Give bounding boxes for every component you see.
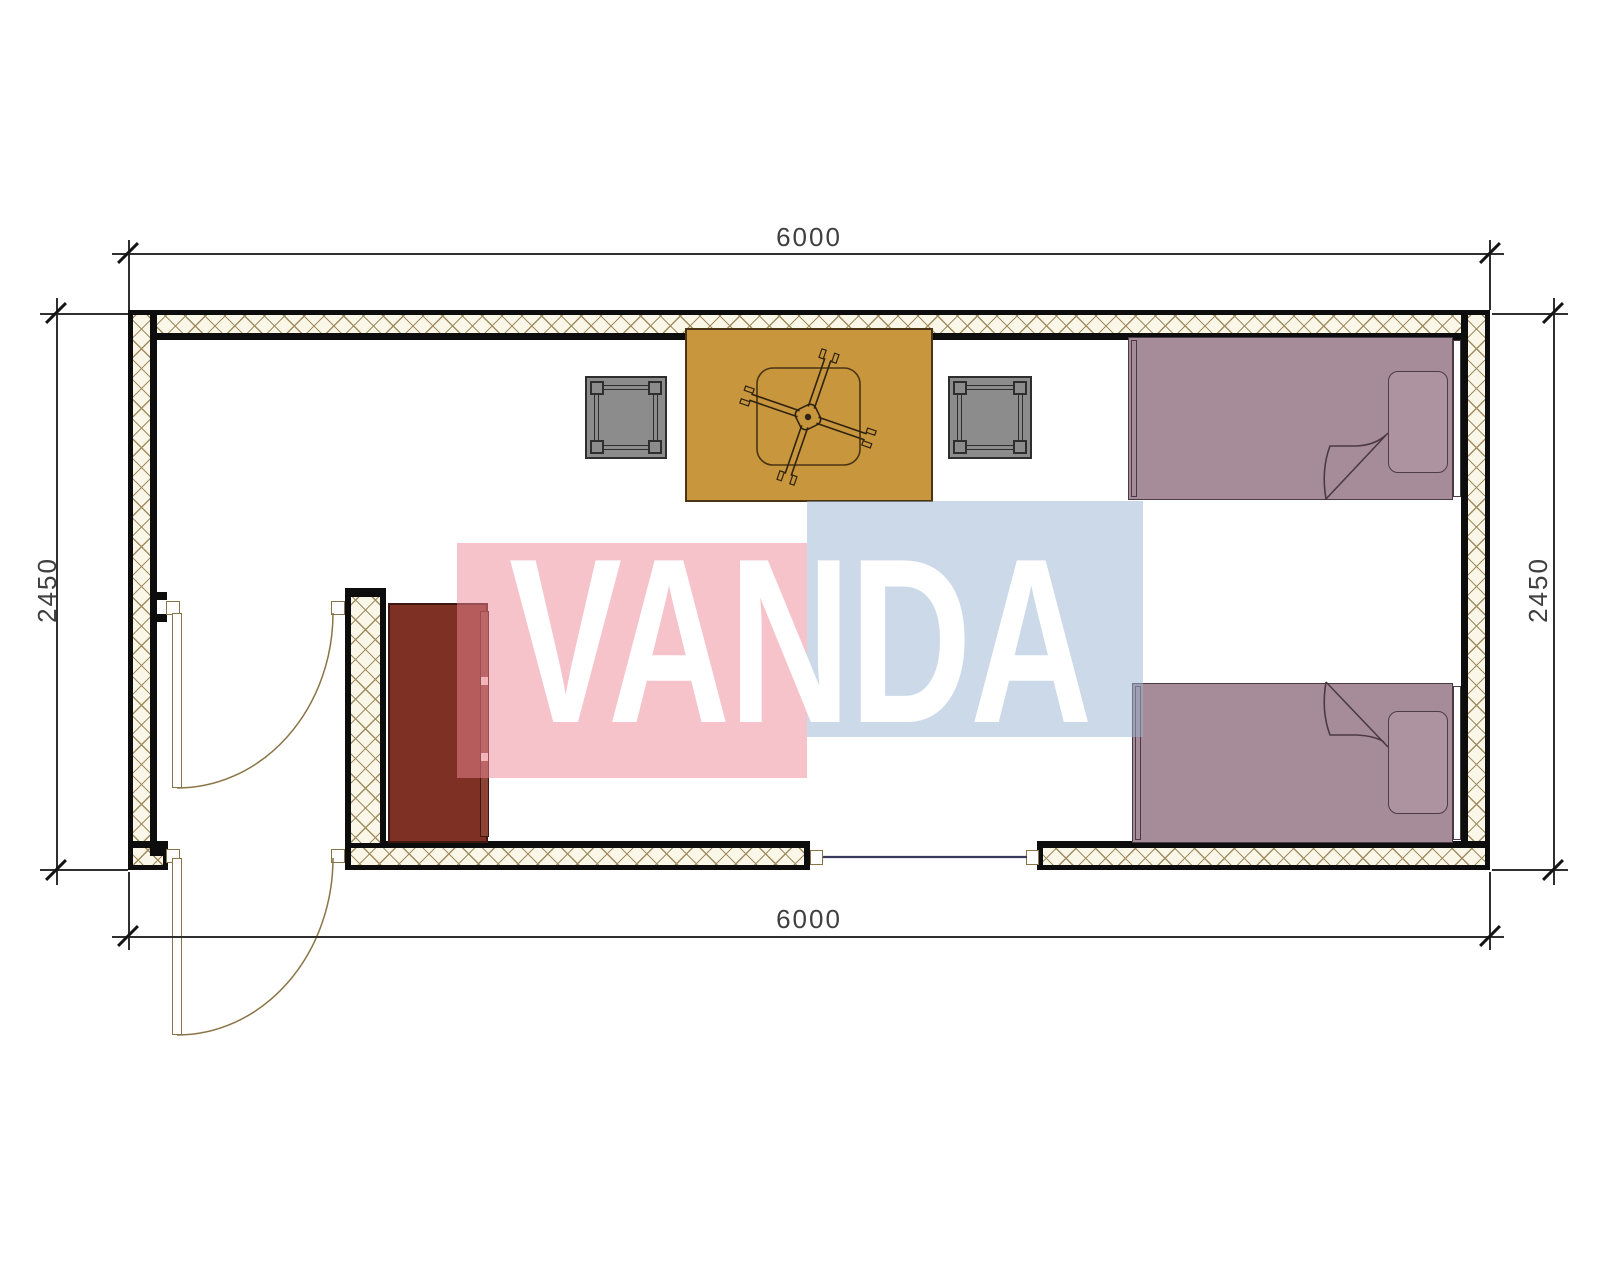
pillow	[1388, 711, 1448, 814]
stool-leg	[590, 440, 604, 454]
dimension-label-right: 2450	[1525, 510, 1551, 670]
bed-bottom	[1132, 683, 1453, 843]
stool-leg	[1013, 381, 1027, 395]
floor-plan-canvas: VANDA 6000 6000 2450 2450	[0, 0, 1600, 1280]
dimension-line-bottom	[112, 936, 1504, 938]
interior-door-leaf	[172, 613, 182, 788]
stool-leg	[953, 381, 967, 395]
stool-leg	[590, 381, 604, 395]
extension-line	[1492, 313, 1568, 315]
jamb-stub-interior-door	[150, 592, 167, 622]
bed-top	[1128, 337, 1453, 500]
stool-leg	[648, 440, 662, 454]
wall-bottom-right-segment	[1037, 841, 1490, 870]
wall-left	[128, 310, 157, 870]
exterior-door-swing-arc	[177, 858, 333, 1035]
door-frame-block	[331, 849, 345, 863]
bed-headboard	[1453, 686, 1461, 840]
extension-line	[1492, 869, 1568, 871]
door-frame-block	[331, 601, 345, 615]
wall-right	[1461, 310, 1490, 870]
wall-bottom-left-segment	[345, 841, 810, 870]
window-frame-block	[810, 850, 823, 865]
stool-seat-frame-inner	[598, 389, 654, 446]
pillow	[1388, 371, 1448, 473]
stool-right	[948, 376, 1032, 459]
dimension-label-top: 6000	[729, 224, 889, 250]
interior-door-swing-arc	[177, 613, 333, 788]
bed-headboard	[1453, 340, 1461, 497]
dimension-line-top	[112, 253, 1504, 255]
stool-leg	[953, 440, 967, 454]
watermark-text: VANDA	[526, 520, 1073, 760]
stool-leg	[1013, 440, 1027, 454]
exterior-door-leaf	[172, 858, 182, 1035]
dining-table	[685, 328, 933, 502]
dimension-label-bottom: 6000	[729, 906, 889, 932]
wall-interior-partition	[345, 588, 386, 843]
stool-left	[585, 376, 667, 459]
stool-leg	[648, 381, 662, 395]
bed-footboard	[1131, 340, 1137, 497]
jamb-stub-exterior-door	[150, 843, 167, 856]
dimension-label-left: 2450	[34, 510, 60, 670]
window-frame-block	[1026, 850, 1039, 865]
dimension-line-right	[1553, 298, 1555, 885]
extension-line	[128, 872, 130, 950]
stool-seat-frame-inner	[961, 389, 1019, 446]
